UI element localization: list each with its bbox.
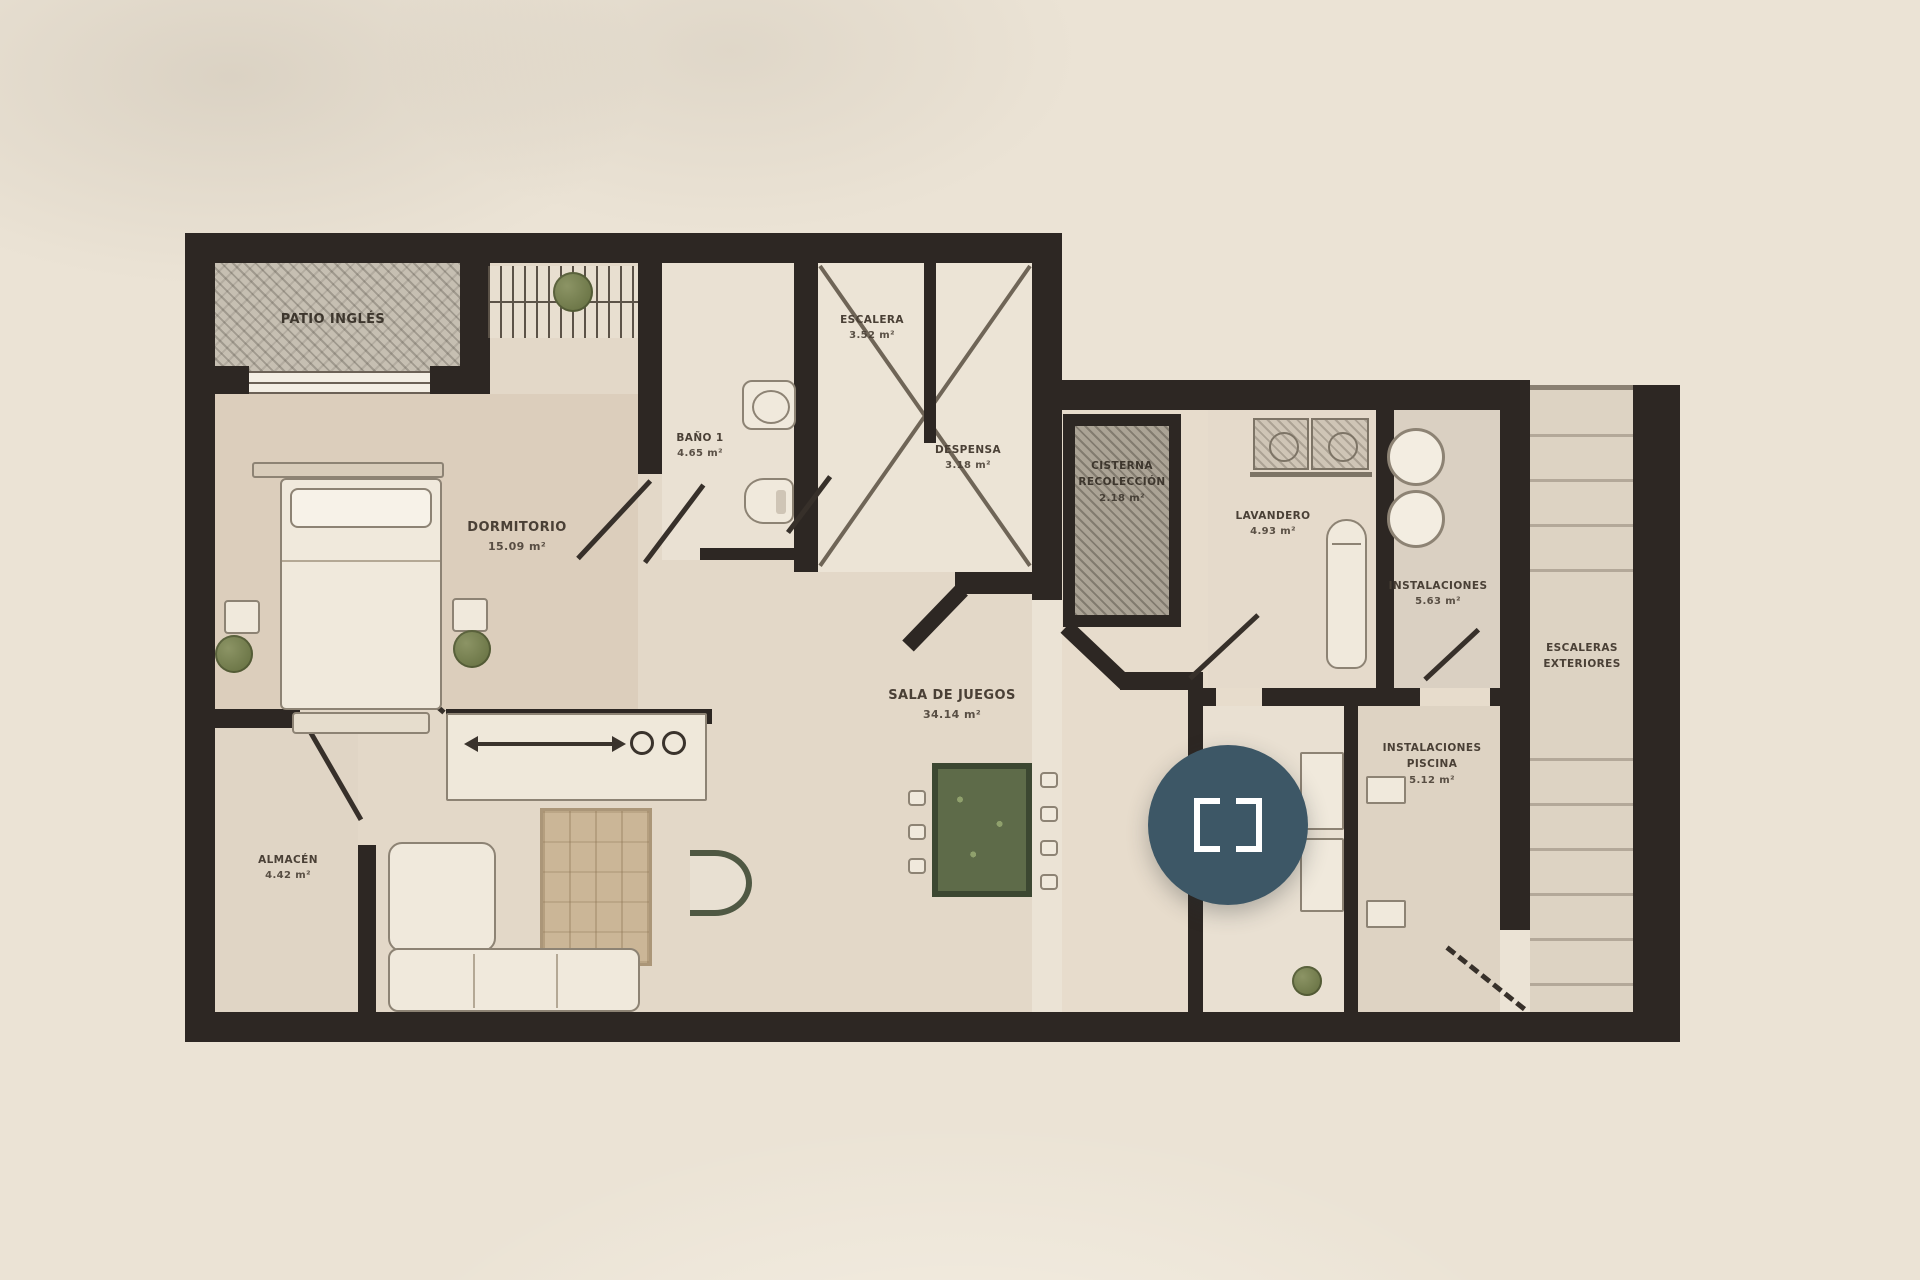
- label-sala: SALA DE JUEGOS 34.14 m²: [872, 686, 1032, 723]
- laundry-counter-edge: [1250, 472, 1372, 477]
- wall-piscina-left: [1344, 706, 1358, 1012]
- fullscreen-button[interactable]: [1148, 745, 1308, 905]
- bed-pillows: [290, 488, 432, 528]
- label-patio-ingles: PATIO INGLÉS: [253, 310, 413, 330]
- washer-1: [1253, 418, 1309, 470]
- stair-divider: [924, 263, 936, 443]
- wall-top-right: [1032, 380, 1530, 410]
- dimension-arrow: [470, 742, 618, 746]
- expand-brackets-icon: [1194, 798, 1220, 852]
- ironing-board: [1326, 519, 1367, 669]
- rug: [540, 808, 652, 966]
- dimension-arrow-left-head: [464, 736, 478, 752]
- bathroom-vanity: [742, 380, 796, 430]
- label-dormitorio: DORMITORIO 15.09 m²: [455, 518, 579, 555]
- stool: [1040, 806, 1058, 822]
- wall-window-stub-right: [430, 366, 490, 394]
- label-instalaciones: INSTALACIONES 5.63 m²: [1378, 578, 1498, 610]
- nightstand-right: [452, 598, 488, 632]
- bed-fold-line: [282, 560, 440, 562]
- expand-brackets-icon: [1236, 798, 1262, 852]
- sofa-seats: [388, 948, 640, 1012]
- toilet: [744, 478, 794, 524]
- label-instalaciones-piscina: INSTALACIONES PISCINA 5.12 m²: [1370, 740, 1494, 788]
- wall-top-left: [185, 233, 1062, 263]
- wall-right: [1500, 380, 1530, 930]
- label-almacen: ALMACÉN 4.42 m²: [228, 852, 348, 884]
- plant-nightstand-right: [453, 630, 491, 668]
- hob-circle-1: [630, 731, 654, 755]
- exterior-stairs-steps-bottom: [1530, 716, 1633, 1012]
- bed-headboard: [252, 462, 444, 478]
- wall-almacen-right: [358, 845, 376, 1012]
- wall-left: [185, 233, 215, 1042]
- label-escaleras-exteriores: ESCALERAS EXTERIORES: [1532, 640, 1632, 673]
- bed-bench: [292, 712, 430, 734]
- stool: [1040, 772, 1058, 788]
- label-despensa: DESPENSA 3.18 m²: [908, 442, 1028, 474]
- stool: [908, 858, 926, 874]
- console-table: [446, 713, 707, 801]
- plant-nightstand-left: [215, 635, 253, 673]
- room-cisterna: [1063, 414, 1181, 627]
- label-bano1: BAÑO 1 4.65 m²: [655, 430, 745, 462]
- wall-dorm-bottom-a: [215, 709, 300, 728]
- exterior-stairs-steps-top: [1530, 392, 1633, 606]
- label-lavandero: LAVANDERO 4.93 m²: [1213, 508, 1333, 540]
- plant-wardrobe: [553, 272, 593, 312]
- exterior-stairs-top-edge: [1530, 385, 1633, 390]
- stool: [1040, 874, 1058, 890]
- hob-circle-2: [662, 731, 686, 755]
- wall-window-stub-left: [215, 366, 249, 394]
- label-escalera: ESCALERA 3.52 m²: [812, 312, 932, 344]
- wall-under-lavandero-b: [1262, 688, 1420, 706]
- wall-under-lavandero-a: [1203, 688, 1216, 706]
- stool: [908, 790, 926, 806]
- floor-plan: PATIO INGLÉS DORMITORIO 15.09 m² BAÑO 1 …: [0, 0, 1920, 1280]
- patio-window: [249, 371, 430, 394]
- label-cisterna: CISTERNA RECOLECCIÓN 2.18 m²: [1066, 458, 1178, 506]
- wall-bottom: [185, 1012, 1680, 1042]
- dimension-arrow-right-head: [612, 736, 626, 752]
- wall-bano-escalera: [794, 263, 818, 572]
- tank-1: [1387, 428, 1445, 486]
- wall-step-vertical: [1032, 233, 1062, 600]
- pool-equipment-2: [1300, 838, 1344, 912]
- tank-2: [1387, 490, 1445, 548]
- pool-equipment-4: [1366, 900, 1406, 928]
- plant-corridor: [1292, 966, 1322, 996]
- wall-stair-band: [1633, 385, 1680, 1042]
- wall-despensa-bottom: [955, 572, 1032, 594]
- wall-patio-right: [460, 263, 490, 371]
- game-table: [932, 763, 1032, 897]
- wall-under-lavandero-c: [1490, 688, 1530, 706]
- wall-bano-bottom: [700, 548, 794, 560]
- stool: [908, 824, 926, 840]
- stool: [1040, 840, 1058, 856]
- washer-2: [1311, 418, 1369, 470]
- sofa-corner: [388, 842, 496, 952]
- nightstand-left: [224, 600, 260, 634]
